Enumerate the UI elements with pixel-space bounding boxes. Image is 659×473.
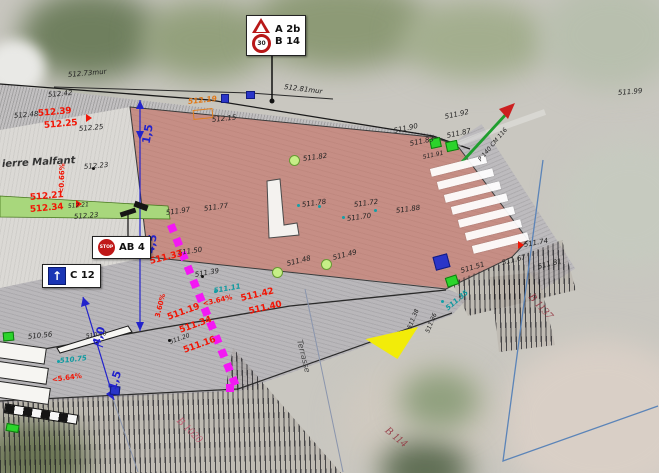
aerial-ground bbox=[560, 140, 659, 270]
orange-rect-marker bbox=[193, 108, 214, 120]
survey-point bbox=[270, 99, 275, 104]
blue-square-marker bbox=[246, 91, 255, 99]
speed-limit-30-icon: 30 bbox=[252, 34, 271, 53]
spot-elevation-label: 512.19 bbox=[188, 95, 218, 105]
sign-code-label: C 12 bbox=[70, 270, 95, 282]
red-tri-marker bbox=[86, 114, 92, 122]
green-circle-marker bbox=[321, 259, 332, 270]
sign-code-label: B 14 bbox=[275, 36, 300, 48]
green-circle-marker bbox=[289, 155, 300, 166]
spot-elevation-label: 511.99 bbox=[618, 88, 643, 97]
stop-sign-icon: STOP bbox=[98, 239, 115, 256]
wall-elevation-label: 512.81mur bbox=[284, 84, 323, 96]
sign-box-a2b-b14: 30 A 2b B 14 bbox=[246, 15, 306, 56]
sign-box-c12: ↑ C 12 bbox=[42, 264, 101, 288]
aerial-ground bbox=[540, 0, 659, 90]
blue-square-marker bbox=[221, 94, 229, 103]
green-square-marker bbox=[3, 332, 15, 342]
warning-triangle-icon bbox=[252, 18, 270, 33]
sign-code-label: AB 4 bbox=[119, 242, 145, 254]
teal-dot-marker bbox=[297, 204, 300, 207]
flow-arrow-head bbox=[499, 103, 515, 119]
teal-dot-marker bbox=[441, 300, 444, 303]
sign-code-label: A 2b bbox=[275, 24, 300, 36]
aerial-pavement bbox=[500, 340, 659, 473]
teal-dot-marker bbox=[374, 209, 377, 212]
sign-box-ab4: STOP AB 4 bbox=[92, 236, 151, 259]
aerial-trees bbox=[400, 370, 480, 430]
dimension-label: 1,5 bbox=[141, 123, 155, 144]
teal-dot-marker bbox=[342, 216, 345, 219]
aerial-trees bbox=[400, 0, 550, 80]
one-way-arrow-icon: ↑ bbox=[48, 267, 66, 285]
site-plan-canvas: 512.73mur512.81mur512.42512.48512.39512.… bbox=[0, 0, 659, 473]
green-circle-marker bbox=[272, 267, 283, 278]
magenta-dot-marker bbox=[226, 384, 234, 392]
spot-elevation-label: 511.92 bbox=[444, 109, 469, 121]
